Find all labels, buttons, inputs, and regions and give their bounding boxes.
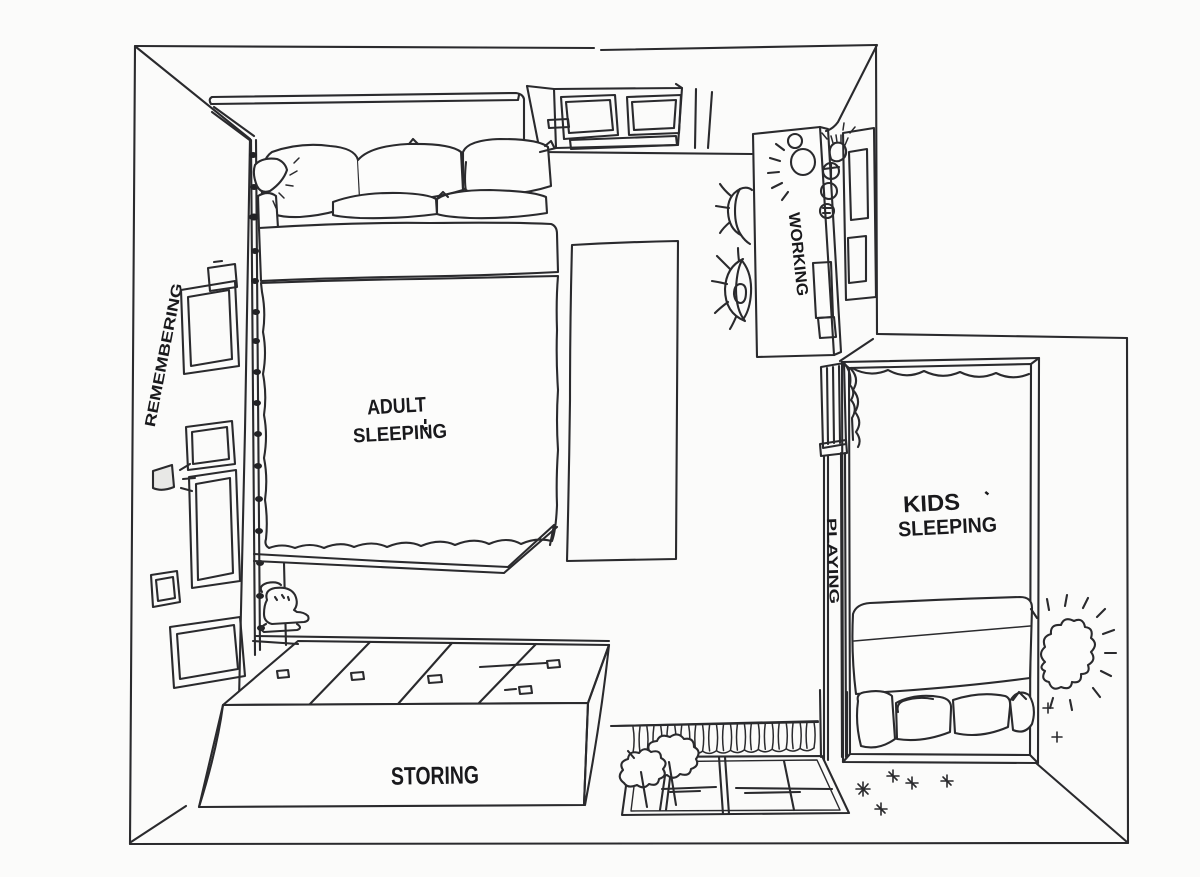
svg-text:REMEMBERING: REMEMBERING [142,282,187,429]
svg-text:PLAYING: PLAYING [824,518,842,604]
svg-text:ADULT: ADULT [367,393,427,419]
svg-text:STORING: STORING [391,761,479,791]
svg-text:SLEEPING: SLEEPING [898,513,998,541]
svg-text:KIDS: KIDS [902,488,960,517]
